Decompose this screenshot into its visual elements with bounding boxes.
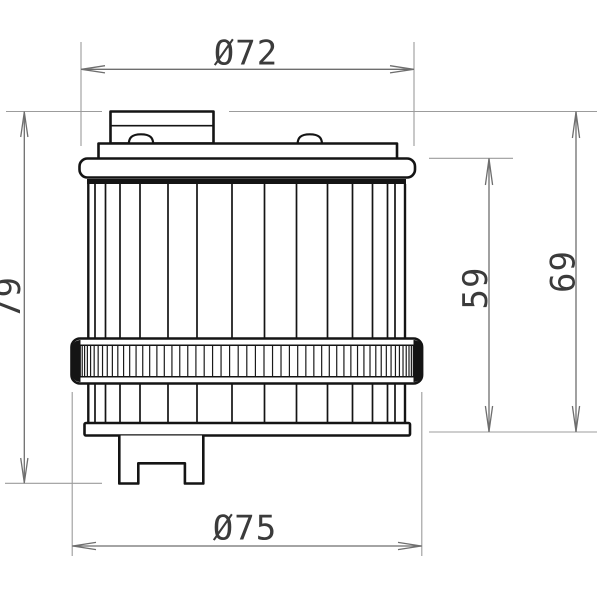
dim-upper-height-label: 69 [544, 250, 584, 293]
top-tab [111, 112, 214, 144]
rivet-nub-left [129, 134, 153, 143]
pleats-lower [95, 384, 395, 424]
dim-bottom-diameter-label: Ø75 [213, 509, 277, 549]
pleat-section-lower-edges [88, 384, 405, 424]
dim-top-diameter-label: Ø72 [214, 34, 278, 74]
dim-overall-height-label: 79 [0, 276, 29, 319]
gasket-band-end-left [72, 340, 81, 382]
rivet-nub-right [298, 134, 322, 143]
end-cap [80, 159, 416, 178]
dim-cap-height: 59 [429, 158, 513, 432]
bottom-plate [85, 423, 411, 436]
pleat-section-upper-edges [88, 184, 405, 339]
dim-cap-height-label: 59 [456, 267, 496, 310]
filter-body [72, 112, 423, 484]
bottom-tab [119, 436, 203, 484]
technical-drawing-canvas: Ø72 Ø75 79 69 59 [0, 0, 600, 600]
pleats-upper [95, 184, 395, 339]
gasket-band-end-right [414, 340, 423, 382]
filter-technical-drawing: Ø72 Ø75 79 69 59 [0, 0, 600, 600]
